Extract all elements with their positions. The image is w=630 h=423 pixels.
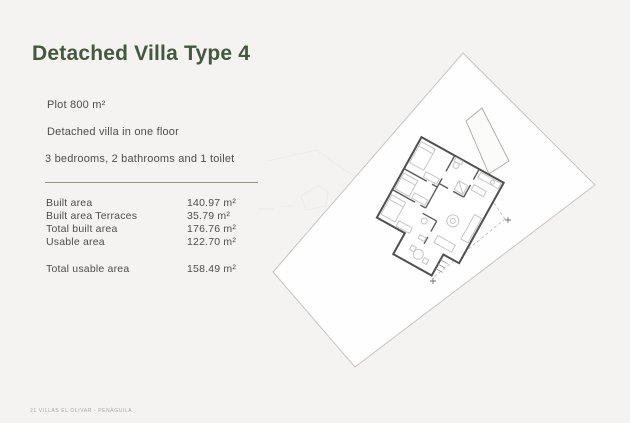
total-value: 158.49 m² [187,263,264,276]
table-row: Total built area 176.76 m² [46,223,264,236]
footer-project-name: 21 VILLAS EL OLIVAR - PENÀGUILA [30,408,132,414]
brochure-page: Detached Villa Type 4 Plot 800 m² Detach… [0,0,630,423]
divider-line [45,182,258,183]
area-label: Usable area [46,236,187,249]
total-row: Total usable area 158.49 m² [46,263,264,276]
total-label: Total usable area [46,263,187,276]
area-value: 140.97 m² [187,197,264,210]
table-row: Usable area 122.70 m² [46,236,264,249]
rooms-text: 3 bedrooms, 2 bathrooms and 1 toilet [45,146,272,173]
area-value: 176.76 m² [187,223,264,236]
page-title: Detached Villa Type 4 [32,42,272,66]
spec-panel: Detached Villa Type 4 Plot 800 m² Detach… [32,42,272,276]
area-label: Built area [46,197,187,210]
table-row: Built area 140.97 m² [46,197,264,210]
area-table: Built area 140.97 m² Built area Terraces… [46,197,264,276]
villa-description-text: Detached villa in one floor [47,119,272,146]
plot-size-text: Plot 800 m² [47,92,272,119]
area-value: 122.70 m² [187,236,264,249]
area-label: Built area Terraces [46,210,187,223]
area-value: 35.79 m² [187,210,264,223]
area-label: Total built area [46,223,187,236]
table-row: Built area Terraces 35.79 m² [46,210,264,223]
